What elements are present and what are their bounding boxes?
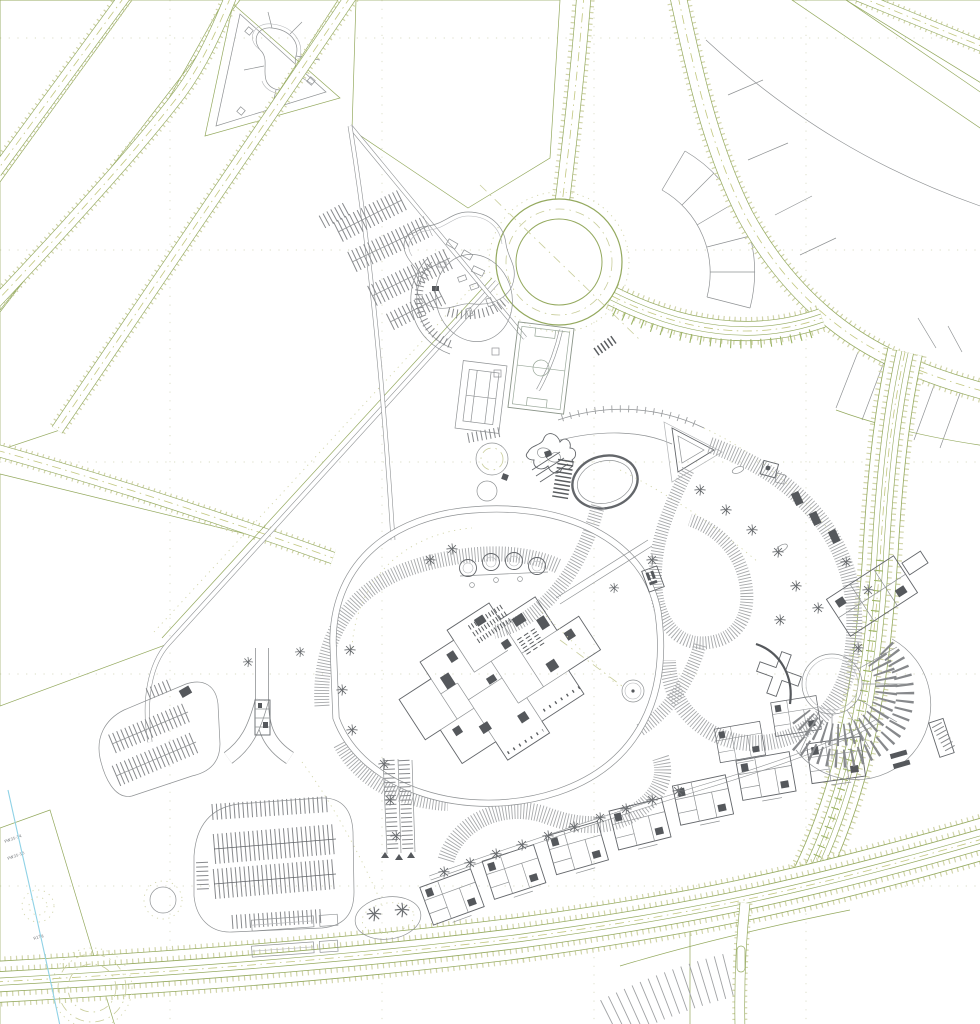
site-masterplan-canvas: PW35-14 PW35-15 R17g: [0, 0, 980, 1024]
masterplan-drawing: PW35-14 PW35-15 R17g: [0, 0, 980, 1024]
street-south-branch: [737, 903, 745, 1024]
fountain-circle: [622, 680, 644, 702]
